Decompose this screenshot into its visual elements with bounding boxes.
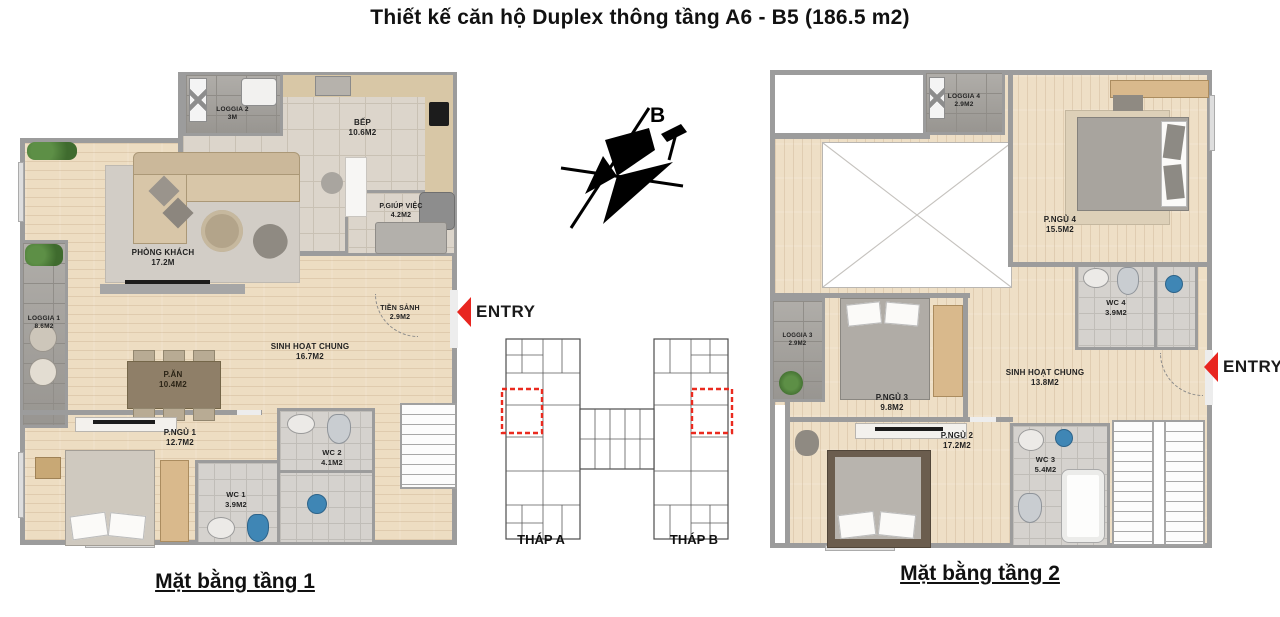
floor1-plan: PHÒNG KHÁCH17.2M BẾP10.6M2 LOGGIA 23M P.… [15,62,470,562]
compass-icon [557,98,702,243]
door-gap [237,410,261,415]
compass-north-label: B [650,104,665,128]
void-double-height [822,142,1012,288]
floor2-plan: LOGGIA 42.9M2 P.NGỦ 415.5M2 WC 43.9M2 LO… [765,65,1215,560]
pillow-icon [884,302,920,327]
shower-drain-icon [1055,429,1073,447]
room-label: P.NGỦ 39.8M2 [847,393,937,414]
room-label: BẾP10.6M2 [315,118,410,139]
wall [770,133,930,139]
room-label: SINH HOẠT CHUNG13.8M2 [980,368,1110,389]
plant-icon [25,244,63,266]
room-label: WC 43.9M2 [1075,298,1157,318]
wall [1008,70,1013,265]
sink-icon [207,517,235,539]
chair-icon [193,408,215,421]
shower-drain-icon [1165,275,1183,293]
pillow-icon [878,511,916,539]
cooktop-icon [429,102,449,126]
wall [1008,262,1212,267]
armchair-icon [795,430,819,456]
window [1209,95,1215,151]
wall [277,470,375,473]
pillow-icon [838,511,877,539]
window [18,452,24,518]
pillow-icon [108,512,146,540]
room-label: WC 35.4M2 [1013,455,1078,475]
room-label: P.NGỦ 217.2M2 [912,431,1002,452]
sink-icon [1083,268,1109,288]
toilet-icon [1018,493,1042,523]
entry-arrow-icon [1204,352,1218,382]
room-label: P.NGỦ 415.5M2 [1015,215,1105,236]
entry-arrow-icon [457,297,471,327]
loggia-table-icon [29,358,57,386]
sink-icon [287,414,315,434]
tv-icon [125,280,210,284]
window [18,162,24,222]
stool-icon [321,172,343,194]
entry-label: ENTRY [476,302,536,322]
room-label: TIỀN SẢNH2.9M2 [365,304,435,322]
entry-label: ENTRY [1223,357,1280,377]
floor1-caption: Mặt bằng tầng 1 [85,570,385,594]
room-label: LOGGIA 32.9M2 [770,333,825,349]
tv-wall [100,284,245,294]
plant-icon [779,371,803,395]
bed-icon [375,222,447,254]
kitchen-sink-icon [315,76,351,96]
pillow-icon [1163,164,1184,200]
tower-b-label: THÁP B [644,532,744,547]
tower-a-label: THÁP A [491,532,591,547]
kitchen-counter-side [425,75,453,193]
stairs [400,403,457,489]
room-label: LOGGIA 23M [185,106,280,123]
room-label: LOGGIA 42.9M2 [923,93,1005,110]
stair-stringer [1152,422,1166,544]
shower-drain-icon [307,494,327,514]
floorplan-page: Thiết kế căn hộ Duplex thông tầng A6 - B… [0,0,1280,617]
nightstand-icon [35,457,61,479]
floor2-caption: Mặt bằng tầng 2 [830,562,1130,586]
water-heater-icon [241,78,277,106]
room-label: WC 24.1M2 [297,448,367,468]
wall [963,295,968,420]
room-label: WC 13.9M2 [201,490,271,510]
tv-icon [93,420,155,424]
room-label: SINH HOẠT CHUNG16.7M2 [245,342,375,363]
exterior-notch [775,75,923,135]
sink-icon [1018,429,1044,451]
page-title: Thiết kế căn hộ Duplex thông tầng A6 - B… [0,6,1280,30]
sofa-back [133,152,300,176]
room-label: P.ĂN10.4M2 [127,370,219,391]
toilet-icon [247,514,269,542]
wardrobe [160,460,189,542]
pillow-icon [70,512,109,541]
bathtub-icon [1061,469,1105,543]
pillow-icon [846,301,882,326]
stairs [1112,420,1205,546]
wardrobe [933,305,963,397]
room-label: PHÒNG KHÁCH17.2M [113,248,213,269]
room-label: P.NGỦ 112.7M2 [135,428,225,449]
toilet-icon [1117,267,1139,295]
room-label: LOGGIA 18.6M2 [20,315,68,332]
wall [785,402,790,548]
planter-icon [27,142,77,160]
toilet-icon [327,414,351,444]
bench-icon [1113,95,1143,111]
door-gap [970,417,996,422]
room-label: P.GIÚP VIỆC4.2M2 [345,202,457,220]
site-plan-map [492,333,742,555]
coffee-table-icon [201,210,243,252]
